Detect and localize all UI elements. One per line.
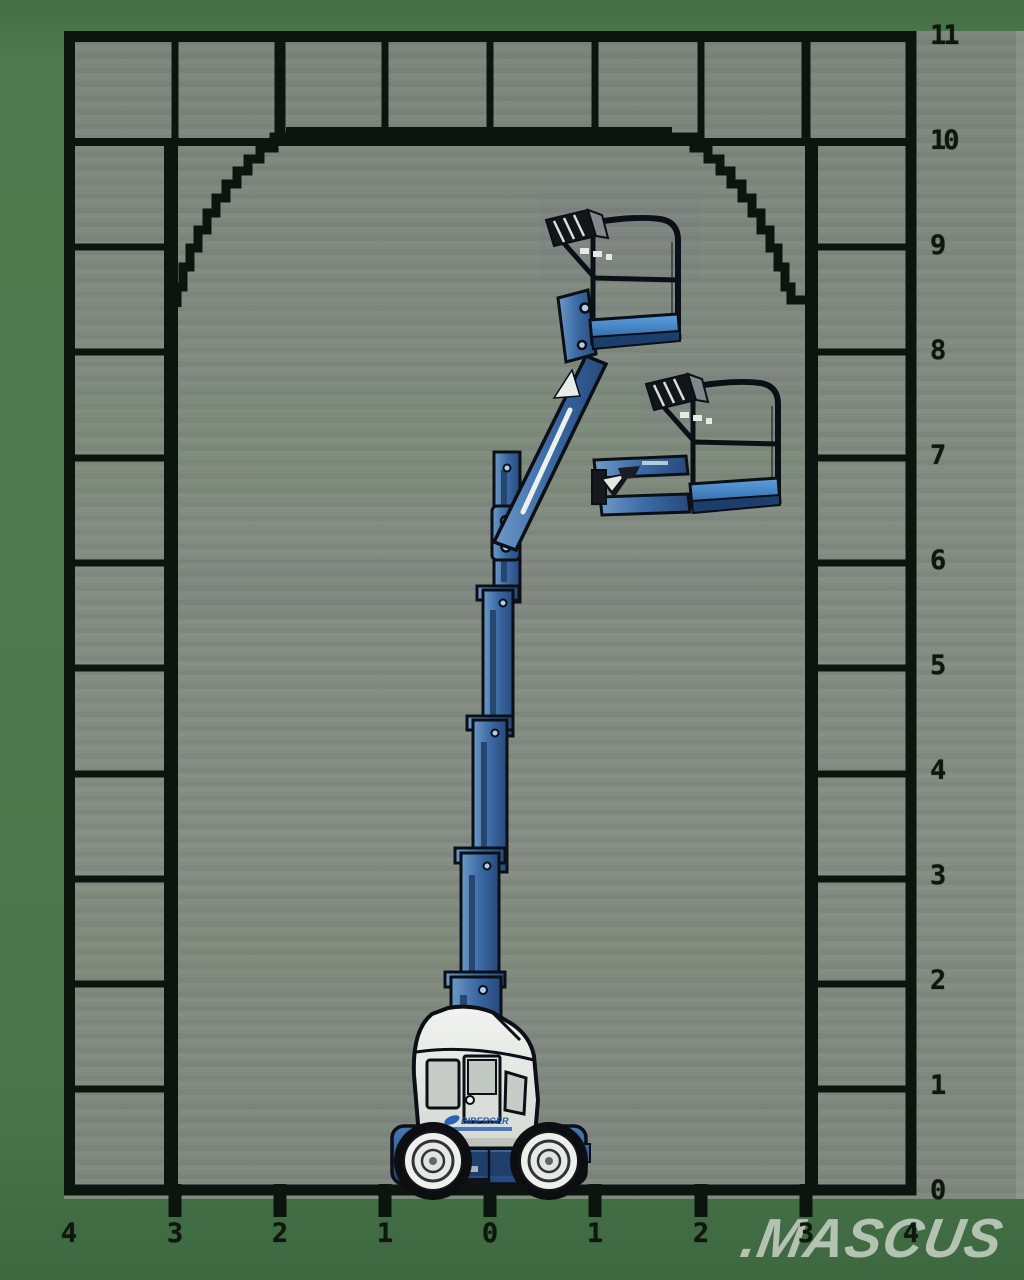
y-axis-label: 4 [930,754,1000,788]
y-axis-label: 6 [930,544,1000,578]
envelope-top-edge [286,127,672,142]
x-axis-label: 2 [671,1217,731,1251]
y-axis-label: 7 [930,439,1000,473]
x-axis-label: 1 [565,1217,625,1251]
y-axis-label: 2 [930,964,1000,998]
rear-wheel [510,1122,588,1200]
y-axis-label: 5 [930,649,1000,683]
y-axis-label: 3 [930,859,1000,893]
y-axis-label: 11 [930,19,1000,53]
envelope-diagram: BIBERGER [0,0,1024,1280]
compression-tint-bands [75,190,805,1000]
x-axis-label: 1 [355,1217,415,1251]
y-axis-label: 9 [930,229,1000,263]
machine-logo-text: BIBERGER [461,1116,509,1126]
x-axis-label: 4 [881,1217,941,1251]
x-axis-label: 0 [460,1217,520,1251]
x-axis-label: 3 [145,1217,205,1251]
y-axis-label: 1 [930,1069,1000,1103]
x-axis-label: 2 [250,1217,310,1251]
y-axis-label: 8 [930,334,1000,368]
front-wheel [394,1122,472,1200]
x-axis-label: 4 [39,1217,99,1251]
y-axis-label: 0 [930,1174,1000,1208]
envelope-right-edge [805,142,818,1190]
y-axis-label: 10 [930,124,1000,158]
envelope-left-arc [177,137,292,307]
x-axis-label: 3 [776,1217,836,1251]
screenshot-root: BIBERGER [0,0,1024,1280]
